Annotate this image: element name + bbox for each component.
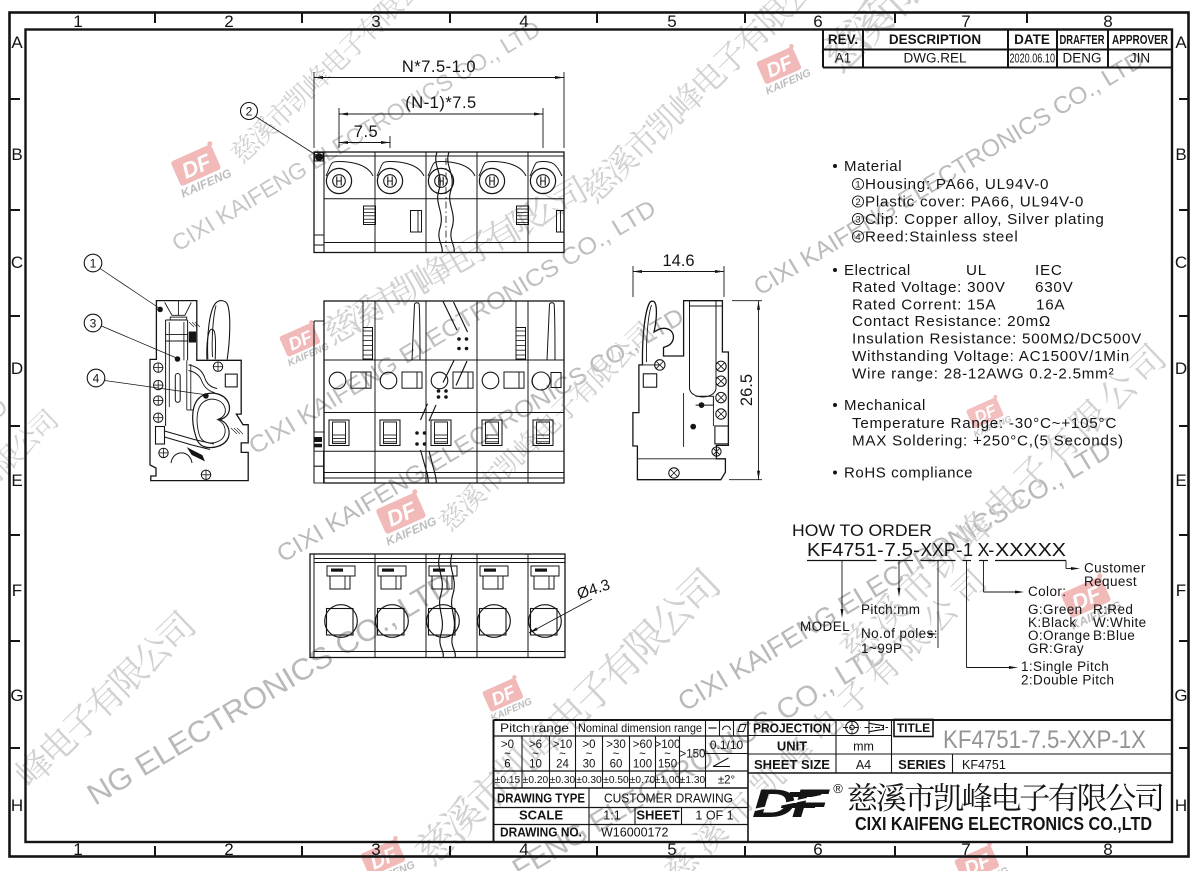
svg-text:Insulation Resistance: 500MΩ/D: Insulation Resistance: 500MΩ/DC500V (852, 331, 1142, 348)
svg-text:1:1: 1:1 (603, 809, 620, 823)
svg-text:E: E (1175, 471, 1186, 490)
svg-text:±0.20: ±0.20 (523, 775, 549, 786)
svg-text:2:Double Pitch: 2:Double Pitch (1021, 673, 1114, 688)
svg-text:3: 3 (371, 840, 380, 859)
svg-text:Plastic cover: PA66, UL94V-0: Plastic cover: PA66, UL94V-0 (865, 194, 1084, 211)
svg-text:Request: Request (1084, 574, 1137, 589)
svg-text:KF4751-7.5-XXP-1X: KF4751-7.5-XXP-1X (943, 726, 1146, 754)
svg-text:KF4751: KF4751 (962, 758, 1006, 772)
svg-text:DATE: DATE (1014, 32, 1050, 47)
svg-text:DENG: DENG (1062, 51, 1101, 66)
svg-text:±0.15: ±0.15 (495, 775, 521, 786)
svg-text:DRAWING NO.: DRAWING NO. (500, 825, 582, 840)
svg-text:7.5: 7.5 (354, 123, 378, 141)
svg-text:C: C (1175, 253, 1187, 272)
svg-text:Pitch range: Pitch range (500, 721, 569, 735)
svg-text:Electrical: Electrical (844, 262, 911, 279)
svg-text:16A: 16A (1036, 297, 1065, 314)
svg-text:KF4751: KF4751 (807, 540, 877, 560)
svg-text:-: - (988, 540, 994, 560)
svg-text:UNIT: UNIT (777, 739, 807, 754)
svg-text:7: 7 (961, 12, 970, 31)
svg-text:G: G (10, 686, 23, 705)
svg-text:±0.30: ±0.30 (550, 775, 576, 786)
svg-text:1~99P: 1~99P (861, 641, 902, 656)
svg-text:UL: UL (966, 262, 987, 279)
svg-text:DRAFTER: DRAFTER (1060, 33, 1105, 47)
svg-text:JIN: JIN (1130, 51, 1150, 66)
svg-text:1: 1 (73, 12, 82, 31)
svg-text:®: ® (833, 781, 843, 796)
svg-text:2020.06.10: 2020.06.10 (1010, 52, 1056, 66)
svg-text:Color:: Color: (1028, 584, 1066, 599)
svg-text:H: H (1175, 796, 1187, 815)
svg-text:A: A (11, 33, 23, 52)
svg-text:150: 150 (658, 759, 677, 771)
svg-text:-: - (956, 540, 963, 560)
svg-text:±2°: ±2° (718, 775, 735, 787)
svg-text:TITLE: TITLE (897, 721, 930, 735)
svg-text:±0.70: ±0.70 (630, 775, 656, 786)
svg-text:B:Blue: B:Blue (1093, 628, 1135, 643)
svg-text:A: A (1175, 33, 1187, 52)
svg-text:8: 8 (1103, 12, 1112, 31)
svg-text:SERIES: SERIES (898, 757, 946, 772)
svg-text:10: 10 (529, 759, 542, 771)
svg-text:1: 1 (855, 179, 860, 190)
svg-text:Wire range: 28-12AWG 0.2-2.5: Wire range: 28-12AWG 0.2-2.5mm² (852, 366, 1114, 383)
svg-text:Nominal dimension range: Nominal dimension range (578, 721, 702, 735)
svg-text:mm: mm (853, 740, 874, 754)
svg-text:Withstanding Voltage: AC1500V/: Withstanding Voltage: AC1500V/1Min (852, 348, 1130, 365)
svg-text:4: 4 (519, 12, 528, 31)
svg-text:1: 1 (73, 840, 82, 859)
svg-text:F: F (12, 581, 22, 600)
svg-text:26.5: 26.5 (738, 374, 756, 406)
svg-text:2: 2 (224, 840, 233, 859)
svg-text:SHEET SIZE: SHEET SIZE (754, 757, 830, 772)
svg-text:4: 4 (93, 372, 100, 386)
svg-text:Clip: Copper alloy, Silver pla: Clip: Copper alloy, Silver plating (865, 211, 1105, 228)
svg-text:MAX Soldering: +250°C,(5 Secon: MAX Soldering: +250°C,(5 Seconds) (852, 433, 1124, 450)
svg-text:3: 3 (855, 214, 860, 225)
svg-text:±1.30: ±1.30 (680, 775, 706, 786)
svg-text:±1.00: ±1.00 (655, 775, 681, 786)
svg-text:No.of poles:: No.of poles: (861, 626, 938, 641)
svg-text:60: 60 (610, 759, 623, 771)
svg-text:Reed:Stainless steel: Reed:Stainless steel (865, 229, 1018, 246)
svg-text:14.6: 14.6 (662, 252, 694, 270)
svg-text:30: 30 (583, 759, 596, 771)
svg-text:H: H (11, 796, 23, 815)
svg-text:B: B (1175, 145, 1186, 164)
svg-text:4: 4 (519, 840, 528, 859)
svg-text:G: G (1174, 686, 1187, 705)
svg-text:A1: A1 (835, 51, 852, 66)
svg-text:C: C (11, 253, 23, 272)
svg-text:MODEL: MODEL (800, 619, 850, 634)
svg-text:8: 8 (1103, 840, 1112, 859)
svg-text:XXP: XXP (921, 540, 956, 560)
svg-text:DESCRIPTION: DESCRIPTION (889, 32, 981, 47)
svg-text:1: 1 (963, 540, 973, 560)
svg-text:0.1/10: 0.1/10 (710, 738, 744, 752)
svg-text:3: 3 (371, 12, 380, 31)
svg-text:Rated Voltage: 300V: Rated Voltage: 300V (852, 279, 1006, 296)
svg-text:Temperature Range: -30°C~+105°: Temperature Range: -30°C~+105°C (852, 415, 1117, 432)
svg-text:2: 2 (855, 197, 860, 208)
svg-text:APPROVER: APPROVER (1112, 33, 1168, 47)
svg-text:±0.30: ±0.30 (576, 775, 602, 786)
svg-text:B: B (11, 145, 22, 164)
svg-text:Housing: PA66, UL94V-0: Housing: PA66, UL94V-0 (865, 176, 1049, 193)
svg-text:1 OF 1: 1 OF 1 (695, 809, 733, 823)
svg-text:24: 24 (556, 759, 569, 771)
svg-text:5: 5 (667, 12, 676, 31)
svg-text:Material: Material (844, 158, 902, 175)
svg-text:Pitch:mm: Pitch:mm (861, 602, 920, 617)
svg-text:HOW TO ORDER: HOW TO ORDER (792, 521, 932, 540)
svg-text:630V: 630V (1035, 279, 1074, 296)
svg-text:D: D (11, 359, 23, 378)
svg-text:IEC: IEC (1035, 262, 1063, 279)
svg-text:7.5: 7.5 (885, 540, 914, 560)
svg-text:6: 6 (813, 12, 822, 31)
svg-text:DWG.REL: DWG.REL (903, 51, 966, 66)
svg-text:DRAWING TYPE: DRAWING TYPE (497, 791, 585, 806)
svg-text:CUSTOMER DRAWING: CUSTOMER DRAWING (604, 792, 733, 806)
svg-text:Rated Corrent: 15A: Rated Corrent: 15A (852, 297, 996, 314)
svg-text:Mechanical: Mechanical (844, 397, 926, 414)
svg-text:REV.: REV. (828, 32, 858, 47)
svg-text:3: 3 (90, 317, 97, 331)
svg-text:2: 2 (224, 12, 233, 31)
svg-text:GR:Gray: GR:Gray (1028, 641, 1084, 656)
svg-text:PROJECTION: PROJECTION (753, 721, 831, 736)
svg-text:-: - (913, 540, 920, 560)
svg-text:D: D (1175, 359, 1187, 378)
svg-text:A4: A4 (856, 758, 871, 772)
svg-text:W16000172: W16000172 (601, 826, 668, 840)
svg-text:>150: >150 (680, 749, 706, 761)
svg-text:CIXI KAIFENG ELECTRONICS CO.,L: CIXI KAIFENG ELECTRONICS CO.,LTD (855, 814, 1152, 834)
svg-text:Contact Resistance: 20mΩ: Contact Resistance: 20mΩ (852, 313, 1051, 330)
svg-text:±0.50: ±0.50 (603, 775, 629, 786)
svg-text:RoHS compliance: RoHS compliance (844, 465, 973, 482)
svg-text:5: 5 (667, 840, 676, 859)
svg-text:1: 1 (90, 257, 97, 271)
svg-text:4: 4 (855, 232, 860, 243)
svg-text:XXXXX: XXXXX (995, 540, 1066, 560)
svg-text:100: 100 (633, 759, 652, 771)
svg-text:(N-1)*7.5: (N-1)*7.5 (405, 94, 476, 112)
svg-text:-: - (877, 540, 884, 560)
svg-text:SHEET: SHEET (636, 808, 679, 823)
svg-text:7: 7 (961, 840, 970, 859)
svg-text:E: E (11, 471, 22, 490)
svg-text:6: 6 (504, 759, 510, 771)
svg-text:F: F (1176, 581, 1186, 600)
svg-text:SCALE: SCALE (519, 808, 563, 823)
svg-text:2: 2 (246, 105, 253, 119)
svg-text:6: 6 (813, 840, 822, 859)
svg-text:N*7.5-1.0: N*7.5-1.0 (402, 58, 476, 76)
